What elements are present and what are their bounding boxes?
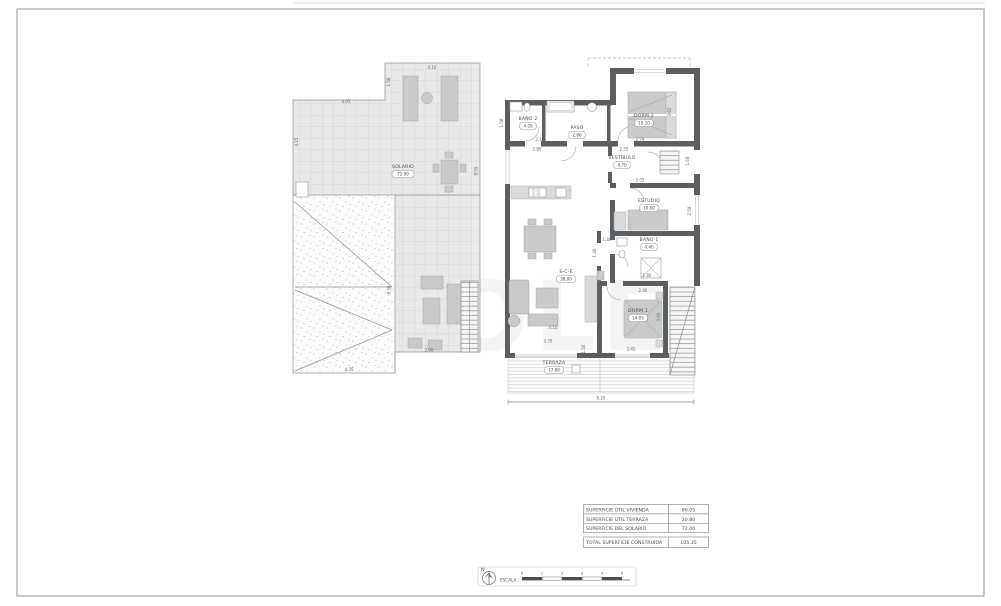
sun-lounger	[421, 276, 443, 289]
toilet	[619, 250, 625, 258]
dim-sce-width: 4.10	[549, 325, 558, 330]
room-label-solario: SOLARIO 72.00	[392, 164, 414, 178]
svg-text:3: 3	[581, 572, 583, 576]
dim-bano2-width: 2.10	[536, 137, 545, 142]
svg-text:4.70: 4.70	[617, 163, 627, 168]
chair	[445, 152, 453, 158]
svg-text:1: 1	[541, 572, 543, 576]
dim-solario-left: 4.15	[294, 137, 299, 146]
dim-roof-right: 8.30	[387, 285, 392, 294]
coffee-table	[536, 288, 558, 308]
room-label-sce: S-C-E 38.00	[557, 269, 576, 283]
floor-plan-svg: OLE	[0, 0, 1001, 606]
daybed	[628, 210, 668, 230]
svg-text:4.40: 4.40	[644, 245, 654, 250]
scale-segments	[522, 577, 630, 580]
dim-estudio-right: 2.59	[687, 206, 692, 215]
svg-text:BAÑO 1: BAÑO 1	[640, 236, 659, 243]
svg-text:90.05: 90.05	[682, 507, 695, 513]
nightstand	[656, 292, 663, 299]
svg-text:5: 5	[621, 572, 623, 576]
desk	[614, 212, 626, 230]
room-label-bano1: BAÑO 1 4.40	[640, 236, 659, 251]
entrance-steps	[660, 151, 679, 174]
dim-dorm2-depth: 3.62	[667, 107, 672, 116]
north-arrow-icon: N	[481, 568, 496, 585]
svg-text:PASO: PASO	[571, 125, 584, 131]
svg-text:10.10: 10.10	[638, 121, 650, 126]
svg-text:SUPERFICIE ÚTIL VIVIENDA: SUPERFICIE ÚTIL VIVIENDA	[586, 506, 650, 513]
dim-sce-left: 1.58	[499, 118, 504, 127]
dim-bano1-width: 1.80	[643, 273, 652, 278]
dim-sce-bottom: 3.70	[544, 339, 553, 344]
room-label-vestibulo: VESTÍBULO 4.70	[608, 154, 636, 169]
sun-lounger	[447, 284, 462, 324]
svg-text:ESTUDIO: ESTUDIO	[638, 198, 660, 204]
room-label-bano2: BAÑO 2 4.05	[519, 115, 538, 130]
solario-surface-left	[293, 100, 385, 195]
washbasin	[588, 103, 597, 112]
overall-dimension: 8.20	[508, 396, 694, 405]
svg-text:SOLARIO: SOLARIO	[392, 164, 414, 170]
dim-dorm1-right: 3.60	[656, 312, 661, 321]
svg-text:BAÑO 2: BAÑO 2	[519, 115, 538, 122]
svg-text:N: N	[481, 568, 485, 574]
svg-text:2: 2	[561, 572, 563, 576]
svg-text:14.05: 14.05	[632, 316, 644, 321]
chair	[544, 219, 552, 225]
scale-bar: N ESCALA : 0 1 2 3 4 5	[478, 567, 636, 586]
svg-text:72.00: 72.00	[682, 526, 695, 532]
left-stairs	[461, 281, 478, 352]
dim-bano1-side: 1.40	[592, 248, 597, 257]
svg-text:4.05: 4.05	[523, 124, 533, 129]
dim-solario-left-top: 4.05	[342, 99, 351, 104]
summary-table: SUPERFICIE ÚTIL VIVIENDA 90.05 SUPERFICI…	[584, 505, 709, 548]
study-furniture	[614, 210, 668, 230]
dim-hall-width: 2.55	[620, 147, 629, 152]
room-label-dorm2: DORM.2 10.10	[634, 113, 654, 127]
sun-lounger	[403, 76, 418, 121]
dim-terrace-bottom: 3.90	[425, 348, 434, 353]
sink-counter	[510, 102, 522, 111]
scale-ticks: 0 1 2 3 4 5	[521, 572, 623, 576]
round-table	[422, 93, 433, 104]
tv-unit	[585, 276, 597, 322]
dim-estudio-top: 3.05	[636, 178, 645, 183]
chair	[544, 253, 552, 259]
svg-text:TOTAL SUPERFICIE CONSTRUIDA: TOTAL SUPERFICIE CONSTRUIDA	[585, 540, 663, 546]
roof-surface	[293, 195, 395, 373]
chair	[433, 164, 439, 172]
chair	[460, 164, 466, 172]
svg-text:0: 0	[521, 572, 524, 576]
svg-text:4: 4	[601, 572, 604, 576]
chair	[528, 219, 536, 225]
pouf	[508, 315, 520, 327]
dim-solario-notch: 1.58	[386, 77, 391, 86]
svg-text:DORM.2: DORM.2	[634, 113, 654, 119]
cabinet	[597, 271, 604, 280]
svg-text:10.00: 10.00	[643, 206, 655, 211]
toilet	[524, 103, 530, 111]
room-label-dorm1: DORM.1 14.05	[628, 308, 648, 322]
dim-bano2-width2: 2.80	[533, 147, 542, 152]
svg-text:2.86: 2.86	[572, 133, 582, 138]
chimney-box	[296, 182, 308, 197]
escala-label: ESCALA :	[500, 578, 519, 583]
dim-roof-bottom: 4.35	[345, 367, 354, 372]
svg-text:72.00: 72.00	[397, 172, 409, 177]
svg-text:8.20: 8.20	[597, 396, 606, 401]
kitchen-sink	[556, 188, 566, 197]
summary-total-row: TOTAL SUPERFICIE CONSTRUIDA 105.35	[584, 537, 709, 548]
svg-text:S-C-E: S-C-E	[559, 269, 572, 275]
dim-dorm1-top: 2.00	[639, 288, 648, 293]
kitchen	[511, 186, 571, 199]
room-label-estudio: ESTUDIO 10.00	[638, 198, 660, 212]
svg-text:20.80: 20.80	[682, 517, 695, 523]
dim-terraza-side: 1.50	[581, 344, 586, 353]
dim-dorm1-bottom: 3.45	[627, 347, 636, 352]
drain-box	[572, 365, 580, 373]
svg-text:38.00: 38.00	[560, 277, 572, 282]
chair	[408, 338, 422, 348]
chair	[528, 253, 536, 259]
svg-text:TERRAZA: TERRAZA	[542, 360, 566, 366]
svg-text:105.35: 105.35	[680, 540, 696, 546]
dim-solario-top: 4.10	[428, 65, 437, 70]
svg-text:SUPERFICIE ÚTIL TERRAZA: SUPERFICIE ÚTIL TERRAZA	[586, 516, 649, 523]
terraza-decking	[508, 356, 694, 393]
chair	[445, 186, 453, 192]
svg-text:DORM.1: DORM.1	[628, 308, 648, 314]
roof-overhang-dashed	[588, 58, 690, 67]
dim-bano1-left: 1.46	[603, 237, 612, 242]
dim-solario-right: 8.55	[474, 166, 479, 175]
sun-lounger	[423, 298, 440, 324]
right-exterior-stairs	[670, 287, 695, 375]
svg-text:VESTÍBULO: VESTÍBULO	[608, 154, 636, 161]
svg-text:17.80: 17.80	[548, 368, 560, 373]
dining-table	[524, 226, 556, 252]
sofa	[509, 280, 529, 314]
svg-text:SUPERFICIE DEL SOLARIO: SUPERFICIE DEL SOLARIO	[586, 526, 647, 532]
nightstand	[656, 340, 663, 347]
room-label-paso: PASO 2.86	[569, 125, 586, 139]
left-unit-roof-plan: SOLARIO 72.00 4.10 4.05 1.58 4.15 8.55 8…	[293, 63, 480, 373]
sink-counter	[617, 238, 627, 246]
dim-vest-side: 1.68	[685, 156, 690, 165]
sun-lounger	[441, 76, 458, 121]
dining-table	[441, 160, 458, 184]
dim-dorm2-width: 2.79	[636, 137, 645, 142]
drawing-sheet: OLE	[0, 0, 1001, 606]
